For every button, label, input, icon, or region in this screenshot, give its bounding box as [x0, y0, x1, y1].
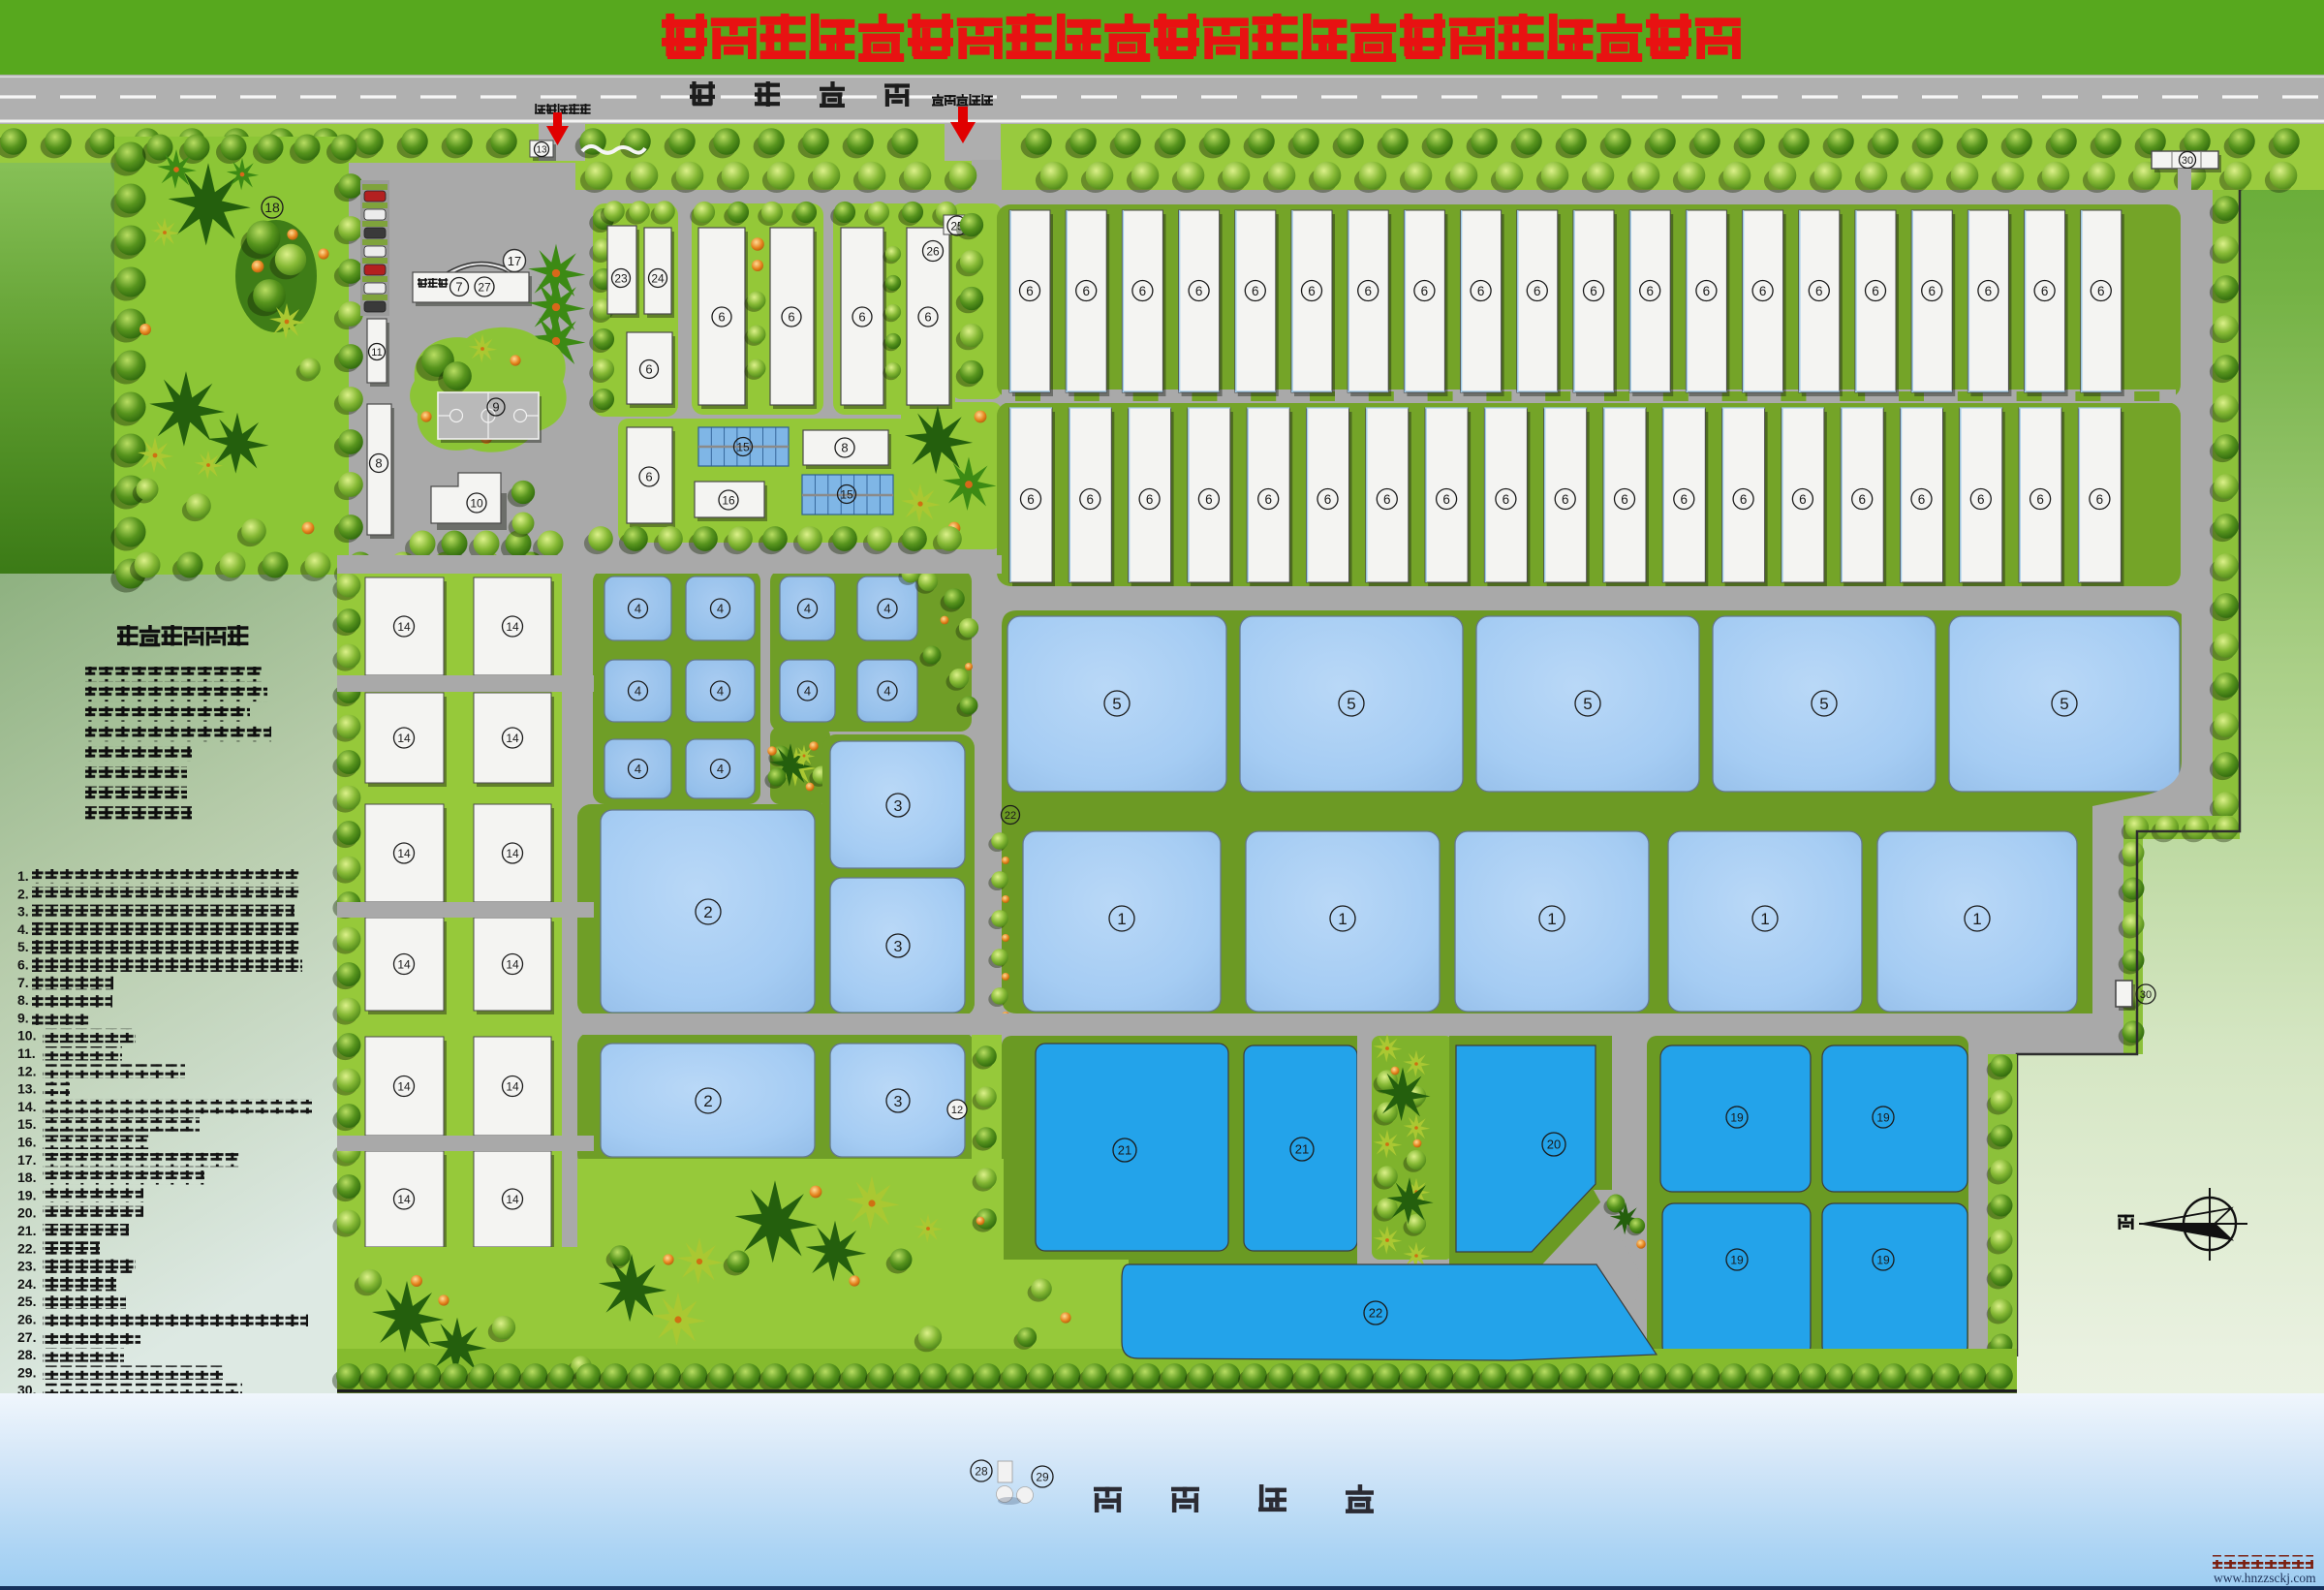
- svg-text:20: 20: [1547, 1138, 1561, 1152]
- svg-text:5: 5: [2060, 695, 2068, 713]
- svg-text:26.: 26.: [17, 1312, 36, 1327]
- svg-text:9: 9: [492, 400, 499, 415]
- svg-text:3.: 3.: [17, 904, 29, 920]
- svg-text:6: 6: [1503, 492, 1510, 507]
- svg-text:6: 6: [1815, 284, 1823, 298]
- svg-text:14: 14: [506, 732, 519, 745]
- svg-text:18.: 18.: [17, 1169, 36, 1185]
- svg-text:14: 14: [397, 1079, 411, 1093]
- svg-text:30: 30: [2182, 155, 2193, 167]
- svg-text:5: 5: [1112, 695, 1121, 713]
- svg-text:6: 6: [2041, 284, 2049, 298]
- svg-text:14: 14: [397, 620, 411, 634]
- svg-text:15.: 15.: [17, 1116, 36, 1132]
- svg-text:1.: 1.: [17, 868, 29, 884]
- svg-text:27: 27: [478, 280, 491, 294]
- svg-text:www.hnzzsckj.com: www.hnzzsckj.com: [2214, 1571, 2316, 1585]
- svg-text:29.: 29.: [17, 1364, 36, 1380]
- svg-text:6: 6: [1534, 284, 1541, 298]
- svg-text:6: 6: [1087, 492, 1095, 507]
- svg-text:14: 14: [506, 620, 519, 634]
- svg-text:16: 16: [722, 493, 735, 507]
- svg-text:25.: 25.: [17, 1294, 36, 1309]
- svg-text:6: 6: [1146, 492, 1154, 507]
- svg-text:2.: 2.: [17, 886, 29, 901]
- svg-text:14: 14: [506, 847, 519, 860]
- svg-text:14: 14: [397, 732, 411, 745]
- svg-text:19: 19: [1730, 1110, 1744, 1124]
- svg-text:6: 6: [1324, 492, 1332, 507]
- svg-text:4: 4: [635, 762, 641, 776]
- svg-text:4: 4: [717, 684, 724, 699]
- svg-text:4: 4: [804, 602, 811, 616]
- svg-text:13.: 13.: [17, 1081, 36, 1097]
- svg-text:6: 6: [1364, 284, 1372, 298]
- svg-text:3: 3: [894, 1094, 903, 1110]
- svg-text:6: 6: [1928, 284, 1936, 298]
- svg-text:23.: 23.: [17, 1259, 36, 1274]
- svg-text:4: 4: [804, 684, 811, 699]
- svg-text:6: 6: [1442, 492, 1450, 507]
- svg-text:16.: 16.: [17, 1135, 36, 1150]
- svg-text:14.: 14.: [17, 1099, 36, 1114]
- svg-text:6: 6: [1205, 492, 1213, 507]
- svg-text:21: 21: [1118, 1143, 1131, 1158]
- svg-text:19.: 19.: [17, 1187, 36, 1202]
- svg-text:6: 6: [1918, 492, 1926, 507]
- svg-text:4: 4: [717, 602, 724, 616]
- svg-text:6: 6: [1858, 492, 1866, 507]
- svg-text:20.: 20.: [17, 1205, 36, 1221]
- svg-text:6.: 6.: [17, 957, 29, 973]
- svg-text:7: 7: [455, 280, 462, 295]
- svg-text:8.: 8.: [17, 992, 29, 1008]
- svg-text:6: 6: [1872, 284, 1879, 298]
- svg-text:6: 6: [924, 310, 931, 325]
- svg-text:19: 19: [1876, 1110, 1890, 1124]
- svg-text:6: 6: [1264, 492, 1272, 507]
- svg-text:1: 1: [1760, 910, 1769, 928]
- svg-text:6: 6: [1027, 492, 1035, 507]
- svg-text:4.: 4.: [17, 921, 29, 937]
- svg-text:18: 18: [264, 200, 280, 215]
- svg-text:14: 14: [506, 1079, 519, 1093]
- svg-text:6: 6: [788, 310, 794, 325]
- svg-text:14: 14: [506, 957, 519, 971]
- svg-text:6: 6: [1252, 284, 1259, 298]
- svg-text:12.: 12.: [17, 1063, 36, 1078]
- svg-text:6: 6: [2097, 284, 2105, 298]
- svg-text:2: 2: [703, 1092, 712, 1110]
- svg-text:6: 6: [858, 310, 865, 325]
- svg-text:9.: 9.: [17, 1010, 29, 1025]
- svg-text:6: 6: [2036, 492, 2044, 507]
- svg-text:6: 6: [1562, 492, 1569, 507]
- svg-text:6: 6: [1740, 492, 1748, 507]
- svg-text:6: 6: [1590, 284, 1597, 298]
- svg-text:21: 21: [1295, 1142, 1309, 1157]
- svg-text:6: 6: [1646, 284, 1654, 298]
- svg-text:1: 1: [1117, 910, 1126, 928]
- svg-text:4: 4: [717, 762, 724, 776]
- svg-text:3: 3: [894, 939, 903, 955]
- svg-text:1: 1: [1547, 910, 1556, 928]
- svg-text:5: 5: [1819, 695, 1828, 713]
- svg-text:23: 23: [614, 271, 628, 285]
- svg-text:1: 1: [1972, 910, 1981, 928]
- svg-text:6: 6: [1421, 284, 1429, 298]
- svg-text:10: 10: [470, 496, 483, 510]
- svg-text:29: 29: [1036, 1470, 1049, 1483]
- svg-text:4: 4: [635, 684, 641, 699]
- svg-text:6: 6: [645, 362, 652, 377]
- svg-text:6: 6: [1308, 284, 1316, 298]
- svg-text:19: 19: [1730, 1253, 1744, 1266]
- svg-text:24: 24: [651, 271, 665, 285]
- svg-text:30: 30: [2140, 989, 2152, 1001]
- svg-text:6: 6: [1082, 284, 1090, 298]
- svg-text:6: 6: [1759, 284, 1767, 298]
- svg-text:4: 4: [883, 602, 890, 616]
- svg-text:6: 6: [1139, 284, 1147, 298]
- svg-text:5: 5: [1583, 695, 1592, 713]
- svg-text:6: 6: [1383, 492, 1391, 507]
- svg-text:14: 14: [397, 957, 411, 971]
- svg-text:5: 5: [1347, 695, 1355, 713]
- svg-text:7.: 7.: [17, 975, 29, 990]
- svg-text:22: 22: [1369, 1306, 1382, 1321]
- svg-text:15: 15: [736, 440, 750, 453]
- svg-text:21.: 21.: [17, 1223, 36, 1238]
- svg-text:17.: 17.: [17, 1152, 36, 1168]
- svg-text:6: 6: [1985, 284, 1993, 298]
- svg-text:8: 8: [375, 456, 382, 471]
- svg-text:14: 14: [506, 1193, 519, 1206]
- svg-text:28: 28: [975, 1464, 988, 1478]
- svg-text:6: 6: [1477, 284, 1485, 298]
- svg-text:13: 13: [536, 145, 547, 156]
- svg-text:22.: 22.: [17, 1240, 36, 1256]
- svg-text:6: 6: [645, 470, 652, 484]
- svg-text:14: 14: [397, 1193, 411, 1206]
- svg-text:15: 15: [840, 487, 853, 501]
- svg-text:4: 4: [635, 602, 641, 616]
- svg-text:10.: 10.: [17, 1028, 36, 1044]
- svg-text:6: 6: [1195, 284, 1203, 298]
- svg-text:26: 26: [926, 244, 940, 258]
- svg-text:8: 8: [841, 441, 848, 455]
- svg-text:1: 1: [1338, 910, 1347, 928]
- svg-text:6: 6: [1621, 492, 1628, 507]
- svg-text:6: 6: [2096, 492, 2104, 507]
- svg-text:24.: 24.: [17, 1276, 36, 1292]
- svg-text:6: 6: [1977, 492, 1985, 507]
- svg-text:6: 6: [718, 310, 725, 325]
- svg-text:6: 6: [1703, 284, 1711, 298]
- svg-text:2: 2: [703, 903, 712, 921]
- svg-text:22: 22: [1005, 810, 1016, 822]
- svg-text:27.: 27.: [17, 1329, 36, 1345]
- svg-text:4: 4: [883, 684, 890, 699]
- svg-text:14: 14: [397, 847, 411, 860]
- svg-text:5.: 5.: [17, 939, 29, 954]
- svg-text:11.: 11.: [17, 1045, 36, 1061]
- svg-text:3: 3: [894, 798, 903, 815]
- svg-text:11: 11: [371, 347, 382, 359]
- svg-text:28.: 28.: [17, 1347, 36, 1362]
- svg-text:12: 12: [951, 1105, 963, 1116]
- svg-text:6: 6: [1026, 284, 1034, 298]
- svg-text:19: 19: [1876, 1253, 1890, 1266]
- svg-text:6: 6: [1681, 492, 1689, 507]
- svg-text:6: 6: [1799, 492, 1807, 507]
- svg-text:17: 17: [508, 254, 521, 268]
